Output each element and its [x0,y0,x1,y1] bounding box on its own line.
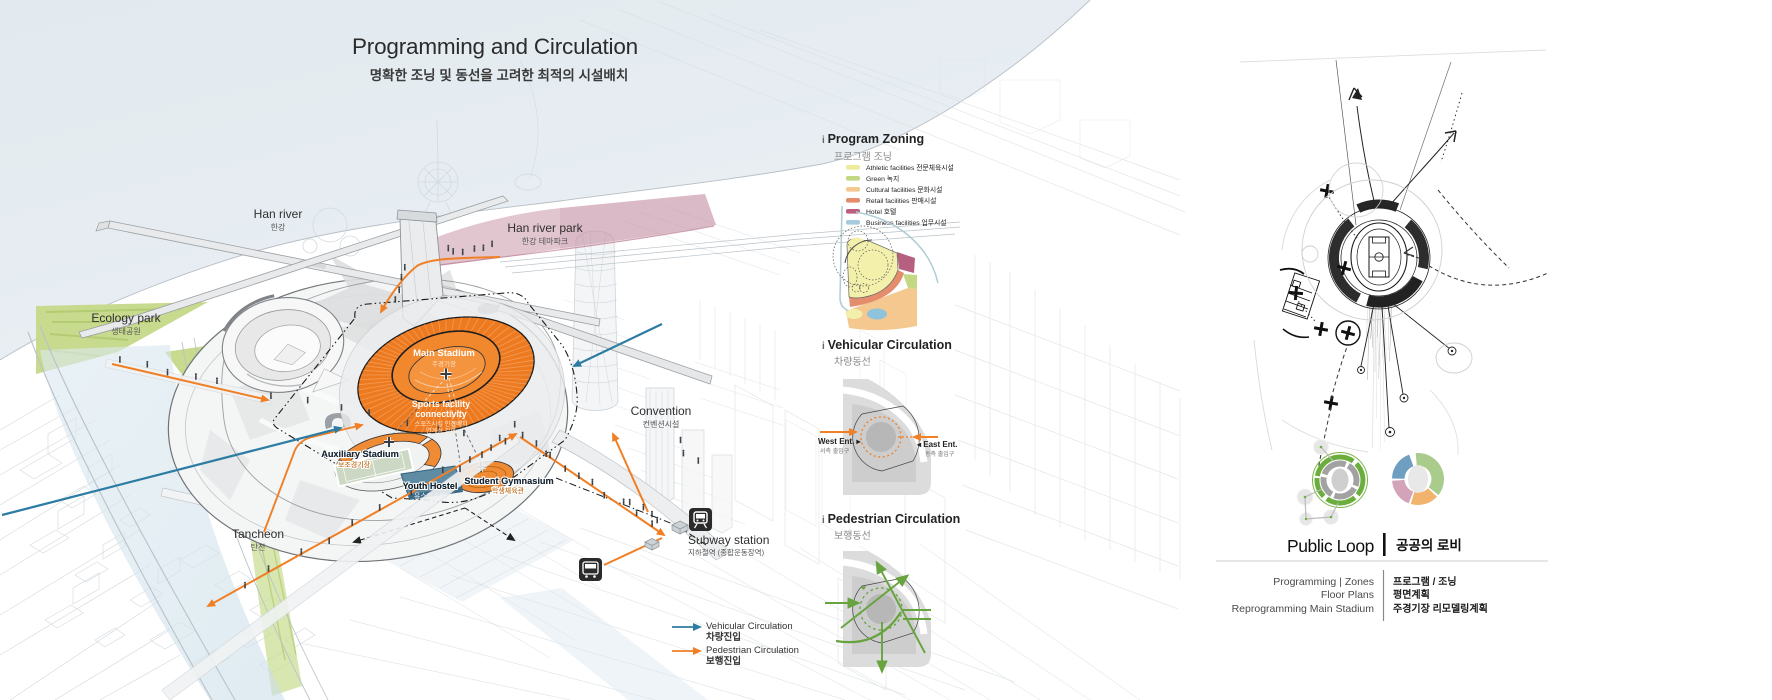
svg-text:Business facilities 업무시설: Business facilities 업무시설 [866,219,947,227]
svg-text:i Program Zoning: i Program Zoning [822,132,924,146]
svg-text:연계성 강화: 연계성 강화 [426,427,456,435]
svg-text:Pedestrian Circulation: Pedestrian Circulation [706,645,799,656]
svg-text:West Ent. ▸: West Ent. ▸ [818,437,862,446]
svg-text:서측 출입구: 서측 출입구 [820,447,850,455]
svg-text:Athletic facilities 전문체육시설: Athletic facilities 전문체육시설 [866,163,954,172]
svg-text:유스호스텔: 유스호스텔 [414,492,446,500]
svg-text:Han river park: Han river park [507,221,583,235]
svg-text:Subway station: Subway station [688,533,769,547]
svg-text:Public Loop: Public Loop [1287,536,1374,556]
svg-text:Retail facilities 판매시설: Retail facilities 판매시설 [866,196,936,205]
svg-text:컨벤션시설: 컨벤션시설 [643,419,680,429]
svg-text:프로그램 / 조닝: 프로그램 / 조닝 [1393,575,1457,588]
svg-text:i Pedestrian Circulation: i Pedestrian Circulation [822,512,960,526]
svg-text:Main Stadium: Main Stadium [413,348,475,359]
svg-text:Floor Plans: Floor Plans [1321,589,1374,601]
svg-text:Auxiliary Stadium: Auxiliary Stadium [321,449,399,459]
svg-text:주경기장 리모델링계획: 주경기장 리모델링계획 [1393,602,1488,615]
svg-text:Sports facility: Sports facility [412,399,470,409]
svg-text:공공의 로비: 공공의 로비 [1396,537,1462,553]
svg-text:차량진입: 차량진입 [706,631,741,643]
svg-text:지하철역 (종합운동장역): 지하철역 (종합운동장역) [688,547,765,557]
svg-text:Ecology park: Ecology park [91,311,161,325]
svg-text:스포츠시설 인접배치: 스포츠시설 인접배치 [415,420,468,428]
svg-text:Programming and Circulation: Programming and Circulation [352,34,638,59]
svg-text:탄천: 탄천 [251,542,266,552]
svg-text:주경기장: 주경기장 [432,359,456,368]
svg-text:학생체육관: 학생체육관 [492,486,525,495]
svg-text:i Vehicular Circulation: i Vehicular Circulation [822,338,952,352]
svg-text:프로그램 조닝: 프로그램 조닝 [834,151,892,163]
svg-text:Vehicular Circulation: Vehicular Circulation [706,621,793,632]
svg-text:차량동선: 차량동선 [834,356,871,368]
svg-text:생태공원: 생태공원 [111,326,140,336]
svg-text:동측 출입구: 동측 출입구 [925,450,955,458]
svg-text:Tancheon: Tancheon [232,527,284,541]
svg-text:Cultural facilities 문화시설: Cultural facilities 문화시설 [866,186,942,194]
svg-text:Reprogramming Main Stadium: Reprogramming Main Stadium [1232,603,1375,615]
svg-text:평면계획: 평면계획 [1393,588,1430,601]
svg-text:Han river: Han river [254,207,303,221]
svg-text:Green 녹지: Green 녹지 [866,174,899,183]
svg-text:한강 테마파크: 한강 테마파크 [522,236,568,246]
svg-text:보행동선: 보행동선 [834,530,871,542]
svg-text:한강: 한강 [271,222,286,232]
svg-text:Youth Hostel: Youth Hostel [403,481,458,491]
svg-text:Programming | Zones: Programming | Zones [1273,576,1374,588]
svg-text:Convention: Convention [631,404,692,418]
svg-text:◂ East Ent.: ◂ East Ent. [916,440,957,449]
svg-text:Student Gymnasium: Student Gymnasium [464,476,553,486]
svg-text:connectivity: connectivity [415,409,466,419]
svg-text:보행진입: 보행진입 [706,655,741,667]
svg-text:명확한 조닝 및 동선을 고려한 최적의 시설배치: 명확한 조닝 및 동선을 고려한 최적의 시설배치 [370,67,628,83]
svg-text:보조경기장: 보조경기장 [338,460,371,469]
